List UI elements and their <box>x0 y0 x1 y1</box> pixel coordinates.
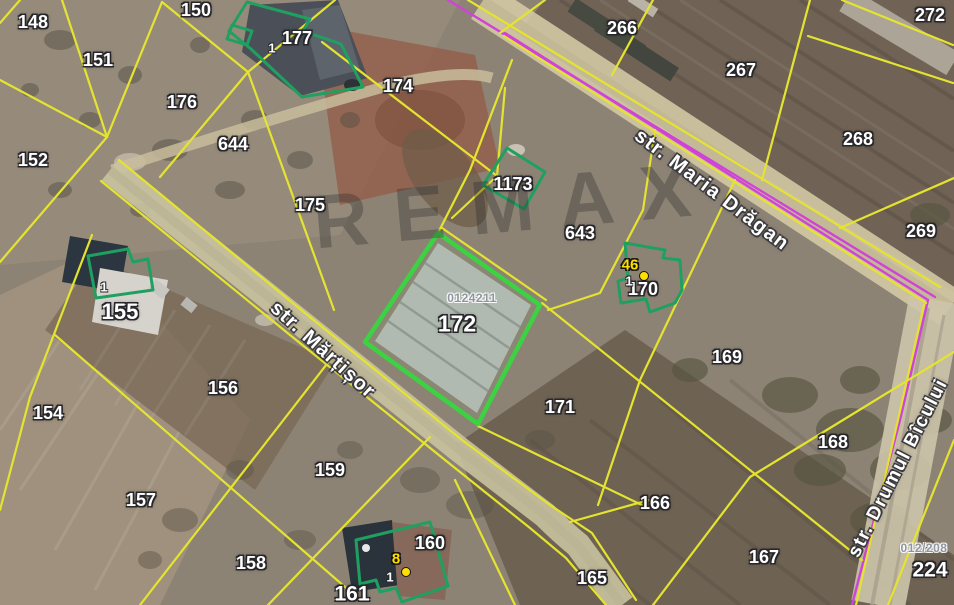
cadastral-map-viewport[interactable]: REMAX str. Maria Drăganstr. Mărțișorstr.… <box>0 0 954 605</box>
map-canvas <box>0 0 954 605</box>
